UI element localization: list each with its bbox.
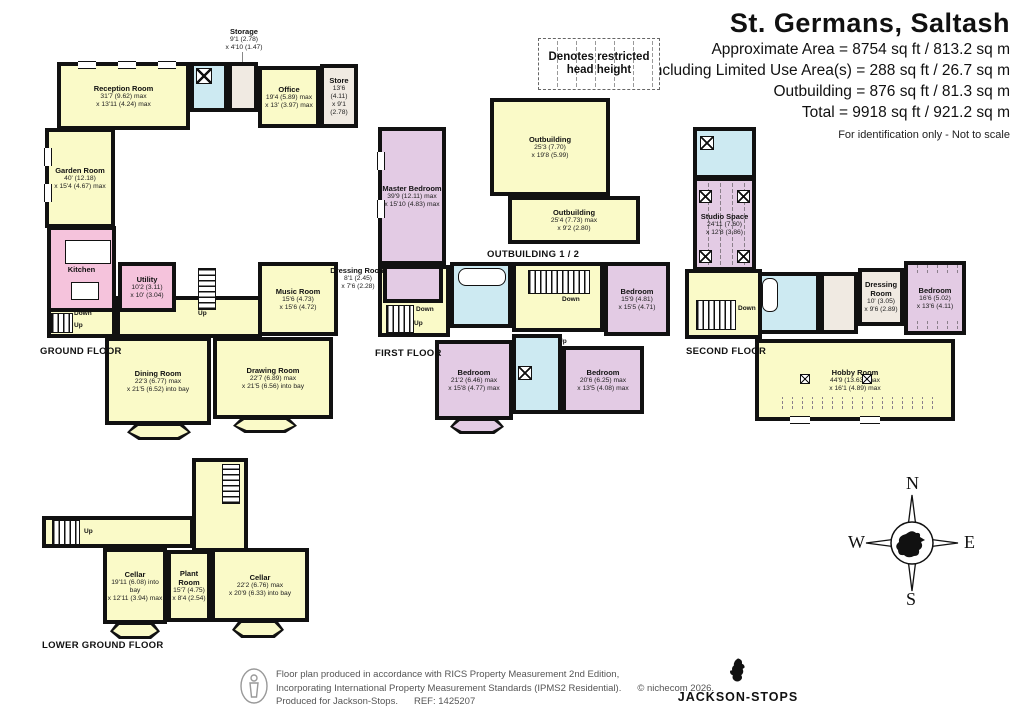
room-master-bedroom: Master Bedroom 39'9 (12.11) max x 15'10 … <box>378 127 446 265</box>
room-cellar1: Cellar 19'11 (6.08) into bay x 12'11 (3.… <box>103 548 167 624</box>
room-bedroom3: Bedroom 20'6 (6.25) max x 13'5 (4.08) ma… <box>562 346 644 414</box>
north-label: N <box>906 473 919 494</box>
room-bedroom1: Bedroom 15'9 (4.81) x 15'5 (4.71) <box>604 262 670 336</box>
page-title: St. Germans, Saltash <box>649 8 1010 39</box>
footer-disclaimer: Floor plan produced in accordance with R… <box>276 668 714 709</box>
window-mark <box>860 416 880 424</box>
dressing1-label: Dressing Room 8'1 (2.45) x 7'6 (2.28) <box>330 266 386 291</box>
stairs <box>528 270 590 294</box>
area-line: Including Limited Use Area(s) = 288 sq f… <box>649 60 1010 81</box>
area-line: Total = 9918 sq ft / 921.2 sq m <box>649 102 1010 123</box>
restricted-area <box>908 321 962 331</box>
nichecom-icon <box>238 666 270 706</box>
bay-window <box>127 423 191 440</box>
window-mark <box>44 148 52 166</box>
room-sf-bathroom-top <box>693 127 756 179</box>
brand-name: JACKSON-STOPS <box>668 690 808 704</box>
footer-ref: REF: 1425207 <box>414 695 475 709</box>
up-label: Up <box>414 320 423 327</box>
footer-line2: Incorporating International Property Mea… <box>276 682 621 696</box>
down-label: Down <box>562 296 580 303</box>
bay-window <box>450 418 504 434</box>
stairs <box>52 520 80 545</box>
area-line: Approximate Area = 8754 sq ft / 813.2 sq… <box>649 39 1010 60</box>
room-reception: Reception Room 31'7 (9.62) max x 13'11 (… <box>57 62 190 130</box>
window-mark <box>158 61 176 69</box>
room-music: Music Room 15'6 (4.73) x 15'6 (4.72) <box>258 262 338 336</box>
bay-window <box>110 622 160 639</box>
stairs <box>198 268 216 310</box>
skylight-icon <box>862 374 872 384</box>
skylight-icon <box>737 250 750 263</box>
window-mark <box>118 61 136 69</box>
kitchen-island <box>65 240 111 264</box>
down-label: Down <box>738 305 756 312</box>
compass-rose: N E S W <box>846 477 978 609</box>
up-label: Up <box>198 310 207 317</box>
room-plant: Plant Room 15'7 (4.75) x 8'4 (2.54) <box>167 550 211 622</box>
window-mark <box>377 152 385 170</box>
fox-icon <box>724 656 752 684</box>
stairs <box>51 313 73 333</box>
room-cellar2: Cellar 22'2 (6.76) max x 20'9 (6.33) int… <box>211 548 309 622</box>
room-outbuilding1: Outbuilding 25'3 (7.70) x 19'8 (5.99) <box>490 98 610 196</box>
up-label: Up <box>74 322 83 329</box>
room-outbuilding2: Outbuilding 25'4 (7.73) max x 9'2 (2.80) <box>508 196 640 244</box>
first-floor-label: FIRST FLOOR <box>375 348 442 359</box>
room-drawing: Drawing Room 22'7 (6.89) max x 21'5 (6.5… <box>213 337 333 419</box>
down-label: Down <box>416 306 434 313</box>
ground-floor-label: GROUND FLOOR <box>40 346 122 357</box>
room-gf-storage <box>228 62 258 112</box>
room-dressing2: Dressing Room 10' (3.05) x 9'6 (2.89) <box>858 268 904 326</box>
room-bedroom4: Bedroom 16'6 (5.02) x 13'6 (4.11) <box>904 261 966 335</box>
window-mark <box>44 184 52 202</box>
footer-line1: Floor plan produced in accordance with R… <box>276 668 714 682</box>
room-hobby: Hobby Room 44'9 (13.63) max x 16'1 (4.89… <box>755 339 955 421</box>
bay-window <box>232 620 284 638</box>
lower-ground-floor-label: LOWER GROUND FLOOR <box>42 640 164 651</box>
stairs <box>386 305 414 333</box>
west-label: W <box>848 532 865 553</box>
window-mark <box>78 61 96 69</box>
bathtub-icon <box>762 278 778 312</box>
stairs <box>696 300 736 330</box>
area-line: Outbuilding = 876 sq ft / 81.3 sq m <box>649 81 1010 102</box>
bay-window <box>233 417 297 433</box>
room-garden: Garden Room 40' (12.18) x 15'4 (4.67) ma… <box>45 128 115 228</box>
stairs <box>222 464 240 504</box>
skylight-icon <box>737 190 750 203</box>
skylight-icon <box>699 250 712 263</box>
east-label: E <box>964 532 975 553</box>
restricted-head-height-legend: Denotes restricted head height <box>538 38 660 90</box>
title-block: St. Germans, Saltash Approximate Area = … <box>649 8 1010 141</box>
room-dressing1 <box>383 265 443 303</box>
room-bedroom2: Bedroom 21'2 (6.46) max x 15'8 (4.77) ma… <box>435 340 513 420</box>
window-mark <box>377 200 385 218</box>
up-label: Up <box>558 338 567 345</box>
down-label: Down <box>74 310 92 317</box>
room-utility: Utility 10'2 (3.11) x 10' (3.04) <box>118 262 176 312</box>
room-store: Store 13'6 (4.11) x 9'1 (2.78) <box>320 64 358 128</box>
restricted-area <box>908 265 962 275</box>
shower-icon <box>700 136 714 150</box>
second-floor-label: SECOND FLOOR <box>686 346 766 357</box>
room-sf-store <box>820 272 858 334</box>
shower-icon <box>518 366 532 380</box>
storage-label: Storage 9'1 (2.78) x 4'10 (1.47) <box>213 27 275 52</box>
room-office: Office 19'4 (5.89) max x 13' (3.97) max <box>258 66 320 128</box>
outbuilding-label: OUTBUILDING 1 / 2 <box>487 249 579 260</box>
shower-icon <box>196 68 212 84</box>
kitchen-appliance <box>71 282 99 300</box>
skylight-icon <box>699 190 712 203</box>
jackson-stops-logo: JACKSON-STOPS <box>668 656 808 704</box>
skylight-icon <box>800 374 810 384</box>
up-label: Up <box>84 528 93 535</box>
restricted-area <box>773 397 937 411</box>
footer-line3: Produced for Jackson-Stops. <box>276 695 398 709</box>
window-mark <box>790 416 810 424</box>
south-label: S <box>906 589 916 610</box>
bathtub-icon <box>458 268 506 286</box>
